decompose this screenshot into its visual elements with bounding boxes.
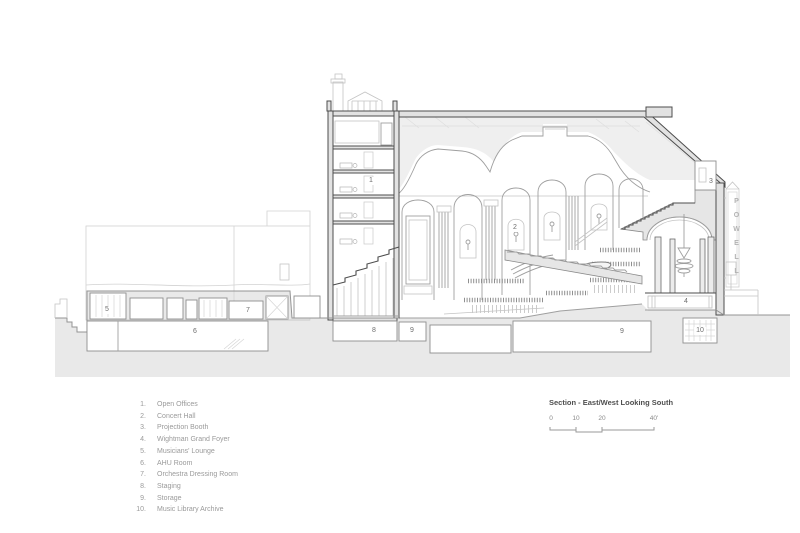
scale-bar-graphic [549,426,659,434]
legend-item-number: 4. [128,434,146,446]
legend-item-4: 4.Wightman Grand Foyer [128,434,238,446]
room-callout-2: 2 [511,224,519,232]
legend-item-1: 1.Open Offices [128,399,238,411]
legend-item-number: 3. [128,422,146,434]
legend-item-label: Open Offices [157,399,198,411]
legend-rows: 1.Open Offices2.Concert Hall3.Projection… [128,399,238,516]
legend-item-number: 5. [128,446,146,458]
legend-item-label: AHU Room [157,458,192,470]
legend-item-label: Orchestra Dressing Room [157,469,238,481]
legend-item-label: Musicians' Lounge [157,446,215,458]
drawing-title: Section - East/West Looking South [549,398,673,407]
scale-tick-label: 20 [598,415,605,422]
legend-item-label: Wightman Grand Foyer [157,434,230,446]
office-floors [335,121,392,244]
legend-item-6: 6.AHU Room [128,458,238,470]
scale-tick-label: 10 [572,415,579,422]
legend-item-number: 10. [128,504,146,516]
room-callout-5: 5 [103,306,111,314]
section-drawing [0,0,800,533]
room-callout-3: 3 [707,178,715,186]
legend-item-7: 7.Orchestra Dressing Room [128,469,238,481]
scale-tick-label: 0 [549,415,553,422]
scale-bar: 0102040' [549,415,669,437]
legend: 1.Open Offices2.Concert Hall3.Projection… [128,399,238,516]
scale-tick-labels: 0102040' [549,415,669,424]
legend-item-label: Storage [157,493,182,505]
room-callout-10: 10 [694,327,706,335]
legend-item-number: 7. [128,469,146,481]
legend-item-3: 3.Projection Booth [128,422,238,434]
balcony-slab [505,250,642,284]
legend-item-number: 9. [128,493,146,505]
room-callout-9a: 9 [408,327,416,335]
legend-item-label: Concert Hall [157,411,196,423]
room-callout-7: 7 [244,307,252,315]
legend-item-label: Staging [157,481,181,493]
room-callout-8: 8 [370,327,378,335]
legend-item-5: 5.Musicians' Lounge [128,446,238,458]
legend-item-number: 8. [128,481,146,493]
legend-item-number: 1. [128,399,146,411]
legend-item-label: Music Library Archive [157,504,224,516]
powell-sign-text: POWELL [727,192,740,288]
scale-tick-label: 40' [650,415,658,422]
architectural-sheet: 1 2 3 4 5 6 7 8 9 9 10 POWELL 1.Open Off… [0,0,800,533]
hall-interior [398,127,650,318]
legend-item-2: 2.Concert Hall [128,411,238,423]
room-callout-6: 6 [191,328,199,336]
legend-item-9: 9.Storage [128,493,238,505]
legend-item-number: 2. [128,411,146,423]
legend-item-label: Projection Booth [157,422,208,434]
legend-item-number: 6. [128,458,146,470]
room-callout-9b: 9 [618,328,626,336]
legend-item-8: 8.Staging [128,481,238,493]
room-callout-1: 1 [367,177,375,185]
room-callout-4: 4 [682,298,690,306]
legend-item-10: 10.Music Library Archive [128,504,238,516]
